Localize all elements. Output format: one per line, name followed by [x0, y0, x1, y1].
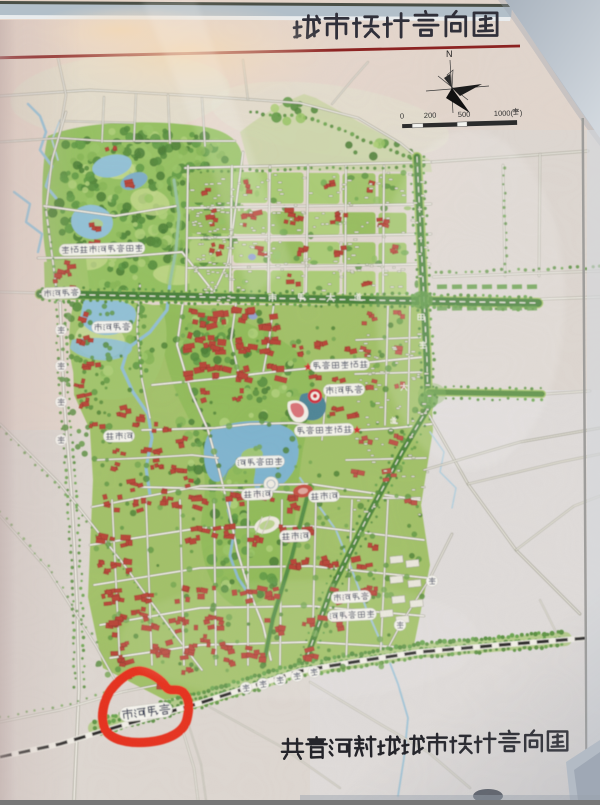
svg-text:200: 200: [424, 111, 437, 120]
svg-text:N: N: [446, 49, 453, 59]
svg-text:1000(: 1000(: [494, 109, 514, 119]
svg-text:500: 500: [458, 110, 471, 119]
svg-text:0: 0: [400, 112, 404, 121]
